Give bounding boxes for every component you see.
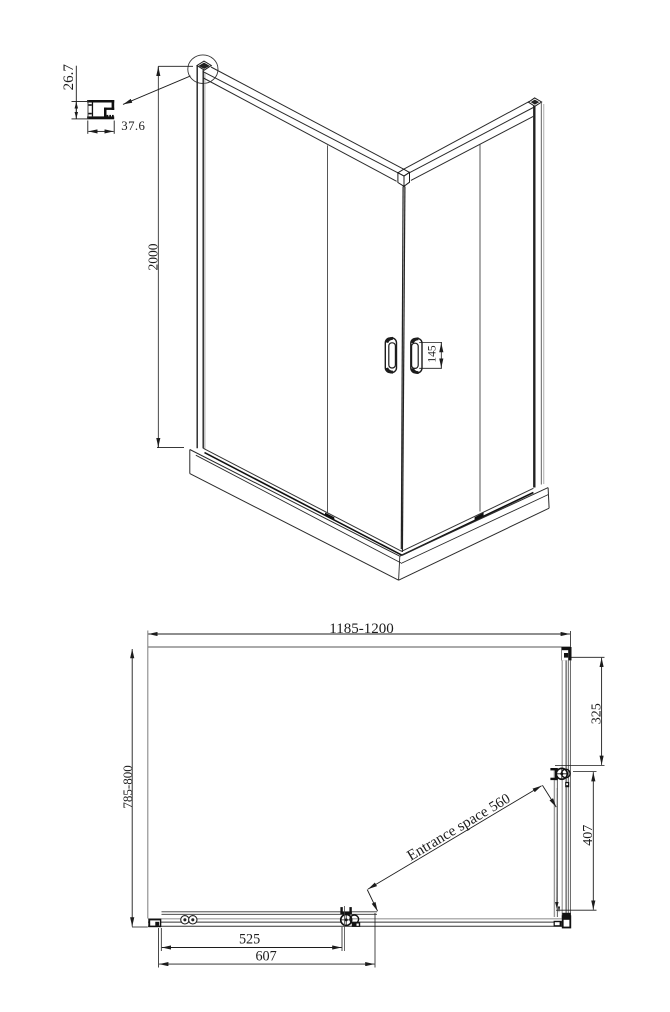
svg-text:325: 325 — [590, 703, 605, 724]
svg-text:Entrance space 560: Entrance space 560 — [404, 790, 513, 865]
svg-text:607: 607 — [255, 949, 276, 965]
svg-text:525: 525 — [239, 932, 260, 948]
svg-text:26.7: 26.7 — [61, 64, 77, 91]
svg-text:145: 145 — [427, 345, 439, 363]
svg-text:1185-1200: 1185-1200 — [329, 621, 393, 637]
svg-text:407: 407 — [581, 825, 596, 846]
svg-text:37.6: 37.6 — [121, 119, 145, 133]
svg-text:2000: 2000 — [146, 243, 161, 270]
svg-text:785-800: 785-800 — [120, 765, 135, 808]
